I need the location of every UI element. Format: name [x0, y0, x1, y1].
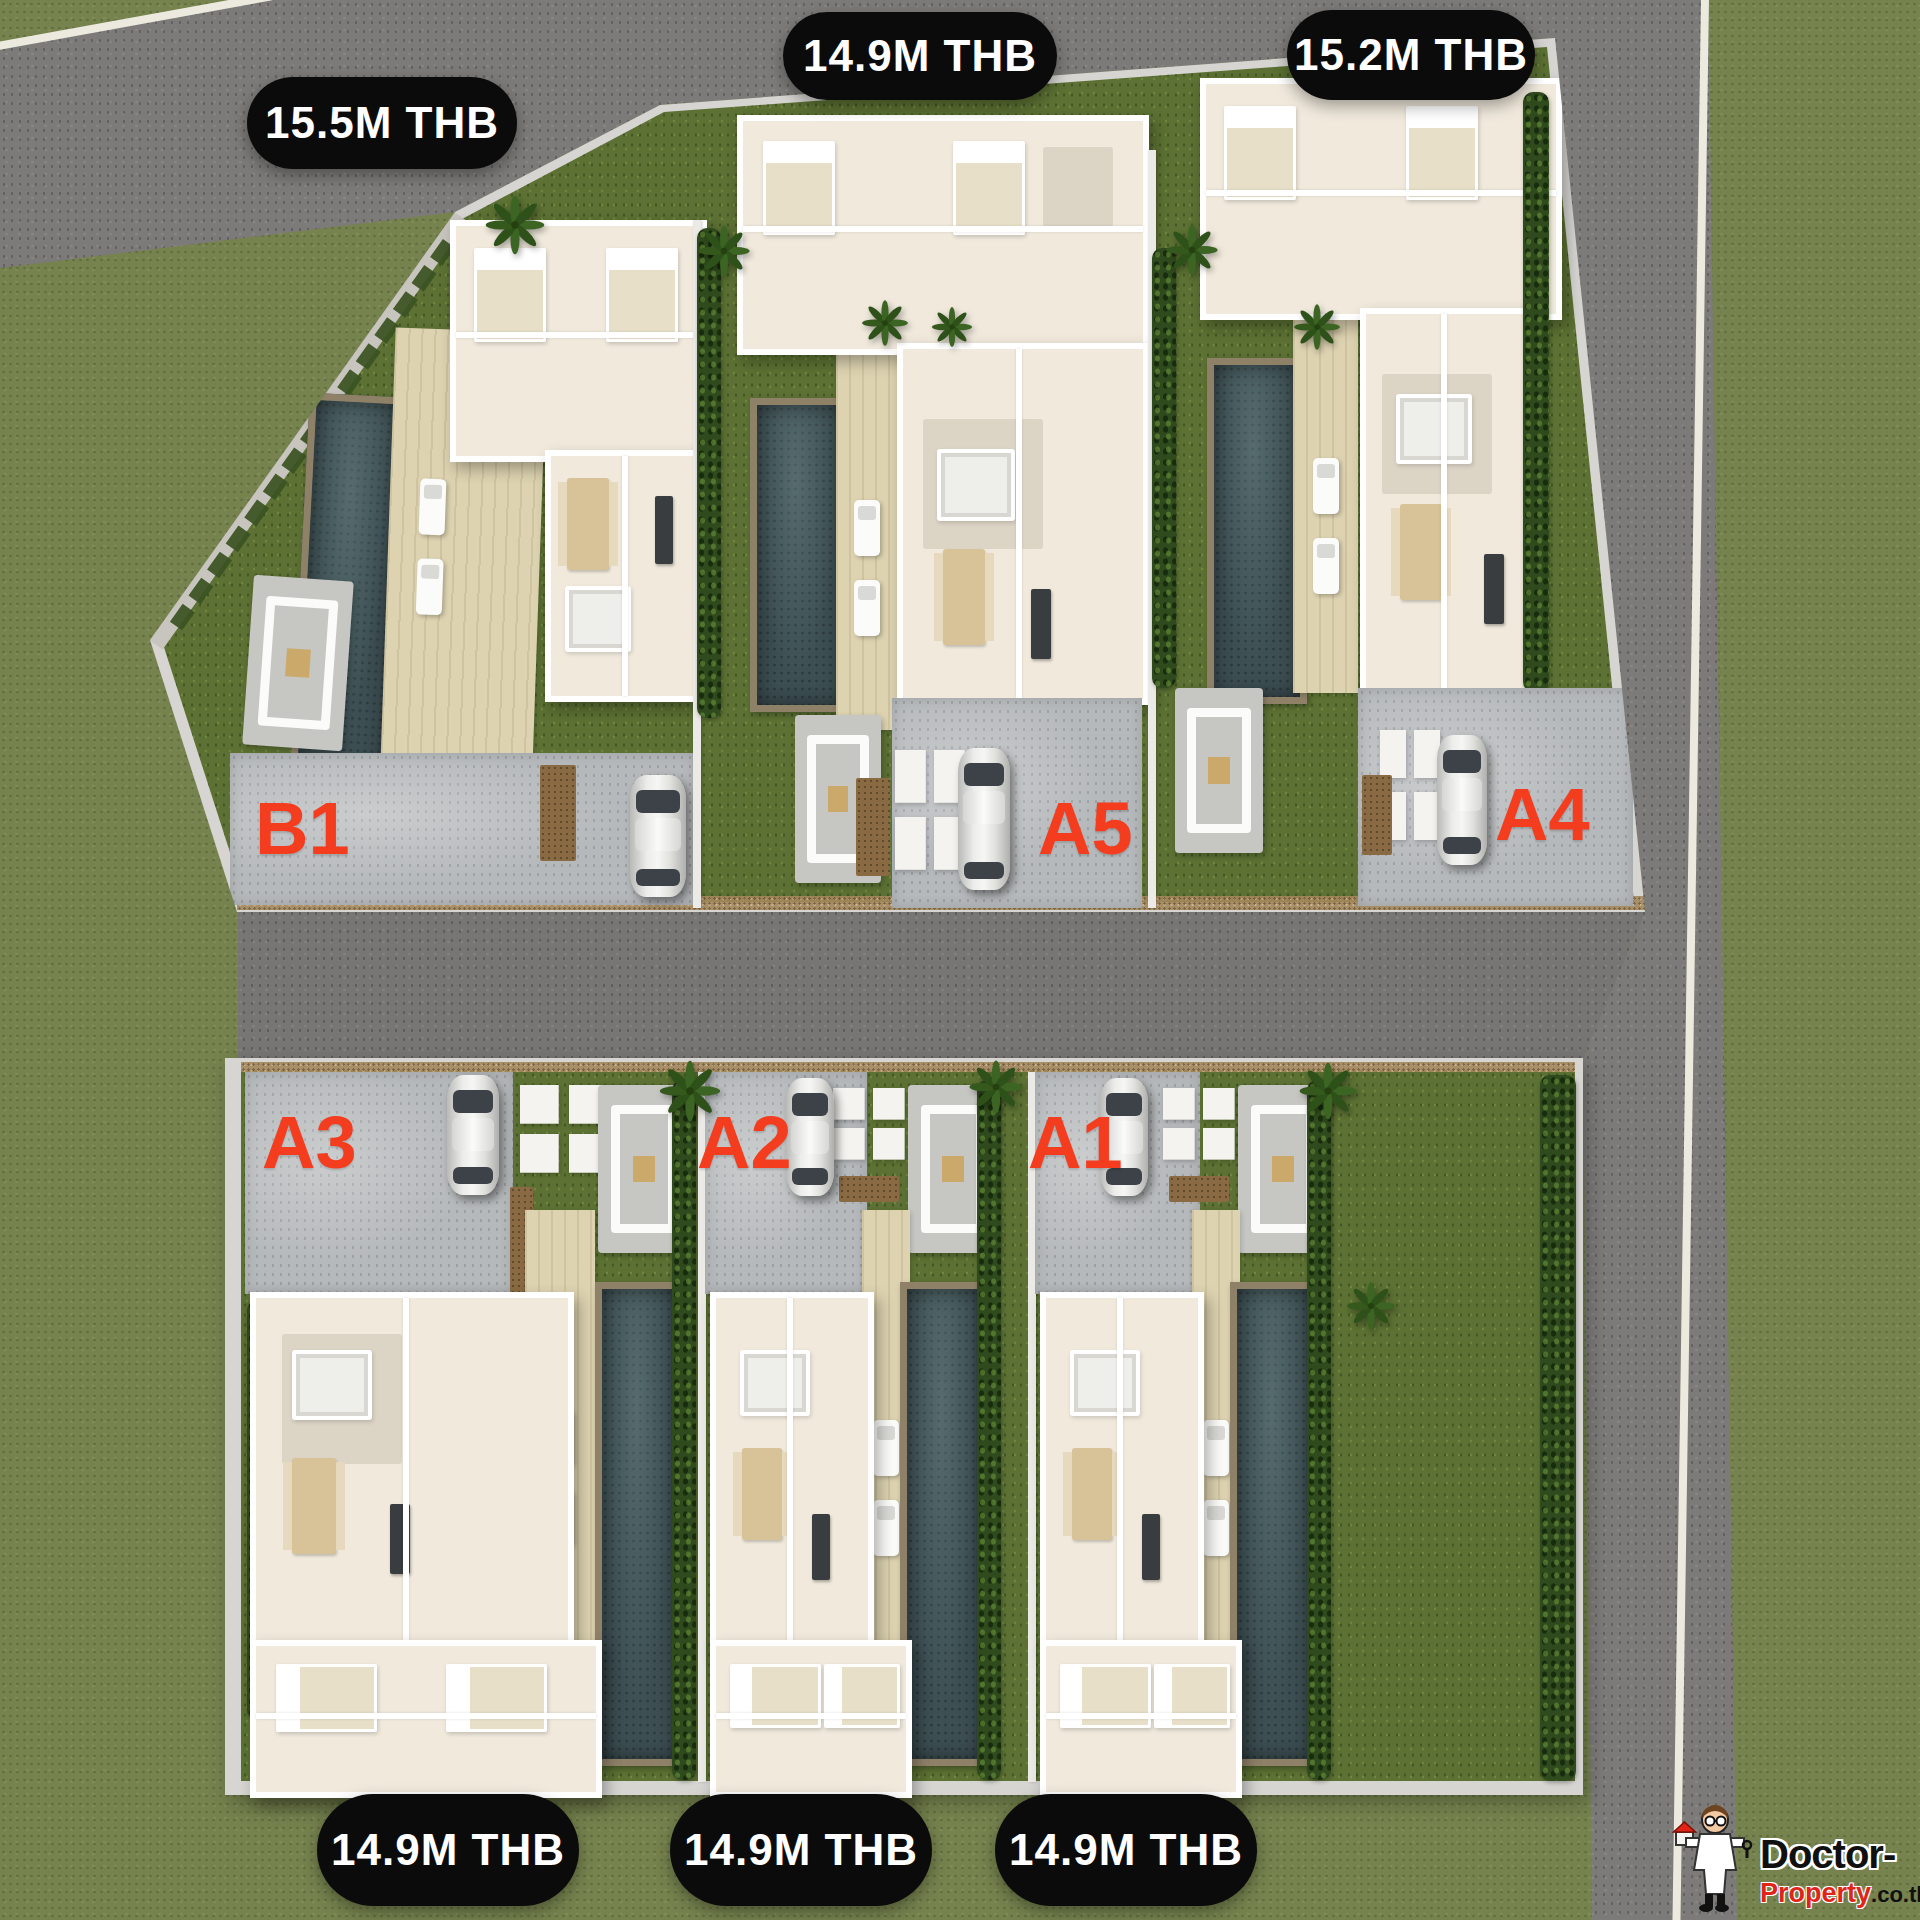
hedge-a5-left — [697, 228, 721, 718]
pool-deck-a4 — [1293, 298, 1358, 693]
furniture-bed — [953, 141, 1025, 235]
furniture-kitchen-island — [390, 1504, 410, 1574]
site-plan-render: B1 — [0, 0, 1920, 1920]
entrance-mat-a5 — [856, 778, 890, 876]
hedge-a4-right — [1523, 92, 1549, 692]
car-icon-a5 — [958, 748, 1010, 890]
furniture-kitchen-island — [1031, 589, 1051, 659]
furniture-bed — [276, 1664, 377, 1732]
furniture-bed — [446, 1664, 547, 1732]
furniture-dining-table — [292, 1458, 336, 1554]
sun-lounger-icon — [854, 500, 880, 556]
palm-tree-icon — [930, 305, 974, 349]
furniture-sofa — [292, 1350, 372, 1420]
house-a3-main — [250, 1292, 574, 1652]
furniture-kitchen-island — [1142, 1514, 1160, 1580]
palm-tree-icon — [657, 1058, 723, 1124]
furniture-dining-table — [1072, 1448, 1112, 1540]
unit-label-a5: A5 — [1038, 792, 1133, 866]
furniture-kitchen-island — [655, 496, 673, 564]
furniture-sofa — [740, 1350, 810, 1416]
hedge-a3-right — [672, 1080, 696, 1780]
hedge-a2-right — [977, 1080, 1001, 1780]
unit-label-a3: A3 — [262, 1106, 357, 1180]
furniture-bed — [824, 1664, 900, 1728]
sun-lounger-icon — [873, 1500, 899, 1556]
furniture-bed — [1406, 106, 1478, 200]
sun-lounger-icon — [1203, 1420, 1229, 1476]
watermark-brand-suffix: .co.th — [1871, 1882, 1920, 1907]
furniture-sofa — [1396, 394, 1472, 464]
sun-lounger-icon — [854, 580, 880, 636]
watermark: Doctor- Property.co.th — [1668, 1800, 1920, 1918]
price-badge-a4: 15.2M THB — [1287, 10, 1535, 100]
house-a5-main — [897, 343, 1149, 705]
sun-lounger-icon — [416, 558, 444, 615]
furniture-dining-table — [567, 478, 609, 570]
house-a1-wing — [1040, 1640, 1242, 1798]
furniture-bed — [474, 248, 546, 342]
compound-bottom: A3 — [225, 1058, 1583, 1795]
car-icon-b1 — [630, 775, 686, 897]
palm-tree-icon — [1164, 222, 1220, 278]
house-a2-wing — [710, 1640, 912, 1798]
furniture-dining-table — [742, 1448, 782, 1540]
watermark-text: Doctor- Property.co.th — [1760, 1834, 1920, 1907]
furniture-bed — [606, 248, 678, 342]
entrance-pads-a5 — [895, 750, 965, 870]
pool-deck-a5 — [836, 330, 898, 730]
furniture-rug — [1043, 147, 1113, 227]
furniture-kitchen-island — [812, 1514, 830, 1580]
watermark-brand-top: Doctor- — [1760, 1834, 1920, 1874]
utility-box-b1 — [185, 260, 231, 312]
furniture-sofa — [937, 449, 1015, 521]
palm-tree-icon — [967, 1058, 1025, 1116]
sun-lounger-icon — [873, 1420, 899, 1476]
car-icon-a4 — [1437, 735, 1487, 865]
house-a2-main — [710, 1292, 874, 1652]
furniture-bed — [1224, 106, 1296, 200]
price-badge-a3: 14.9M THB — [317, 1794, 579, 1906]
furniture-bed — [1154, 1664, 1230, 1728]
unit-label-b1: B1 — [255, 792, 350, 866]
hedge-a4-left — [1152, 248, 1176, 688]
pool-a4 — [1207, 358, 1307, 704]
outdoor-lounge-a4 — [1175, 688, 1263, 853]
sun-lounger-icon — [1313, 538, 1339, 594]
unit-label-a4: A4 — [1495, 778, 1590, 852]
hedge-a1-right — [1307, 1080, 1331, 1780]
palm-tree-icon — [860, 298, 910, 348]
palm-tree-icon — [1292, 302, 1342, 352]
entrance-mat-a4 — [1362, 775, 1392, 855]
palm-tree-icon — [483, 193, 547, 257]
watermark-brand-bottom: Property — [1760, 1878, 1871, 1908]
furniture-bed — [1060, 1664, 1151, 1728]
entrance-mat-a1 — [1169, 1176, 1229, 1202]
furniture-bed — [763, 141, 835, 235]
house-b1-main — [545, 450, 707, 702]
house-a1-main — [1040, 1292, 1204, 1652]
palm-tree-icon — [1345, 1280, 1397, 1332]
entrance-pads-a1 — [1163, 1088, 1235, 1160]
sun-lounger-icon — [419, 478, 447, 535]
pool-a5 — [750, 398, 850, 712]
price-badge-a1: 14.9M THB — [995, 1794, 1257, 1906]
gravel-strip-bottom — [241, 1062, 1575, 1072]
entrance-pads-a2 — [833, 1088, 905, 1160]
car-icon-a3 — [447, 1075, 499, 1195]
car-icon-a2 — [786, 1078, 834, 1196]
unit-label-a1: A1 — [1028, 1106, 1123, 1180]
entrance-mat-b1 — [540, 765, 576, 861]
price-badge-b1: 15.5M THB — [247, 77, 517, 169]
furniture-dining-table — [943, 549, 985, 645]
doctor-mascot-icon — [1672, 1802, 1754, 1914]
house-a3-wing — [250, 1640, 602, 1798]
price-badge-a5: 14.9M THB — [783, 12, 1057, 100]
hedge-roadside — [1540, 1075, 1576, 1781]
palm-tree-icon — [1297, 1060, 1359, 1122]
house-a4-wing — [1200, 78, 1562, 320]
sun-lounger-icon — [1203, 1500, 1229, 1556]
furniture-bed — [730, 1664, 821, 1728]
sun-lounger-icon — [1313, 458, 1339, 514]
entrance-mat-a2 — [839, 1176, 899, 1202]
outdoor-lounge-b1 — [242, 575, 354, 752]
furniture-dining-table — [1400, 504, 1442, 600]
furniture-sofa — [1070, 1350, 1140, 1416]
house-a4-main — [1360, 308, 1532, 710]
price-badge-a2: 14.9M THB — [670, 1794, 932, 1906]
entrance-pads-a3 — [520, 1085, 608, 1173]
palm-tree-icon — [696, 223, 752, 279]
furniture-sofa — [565, 586, 631, 652]
furniture-kitchen-island — [1484, 554, 1504, 624]
